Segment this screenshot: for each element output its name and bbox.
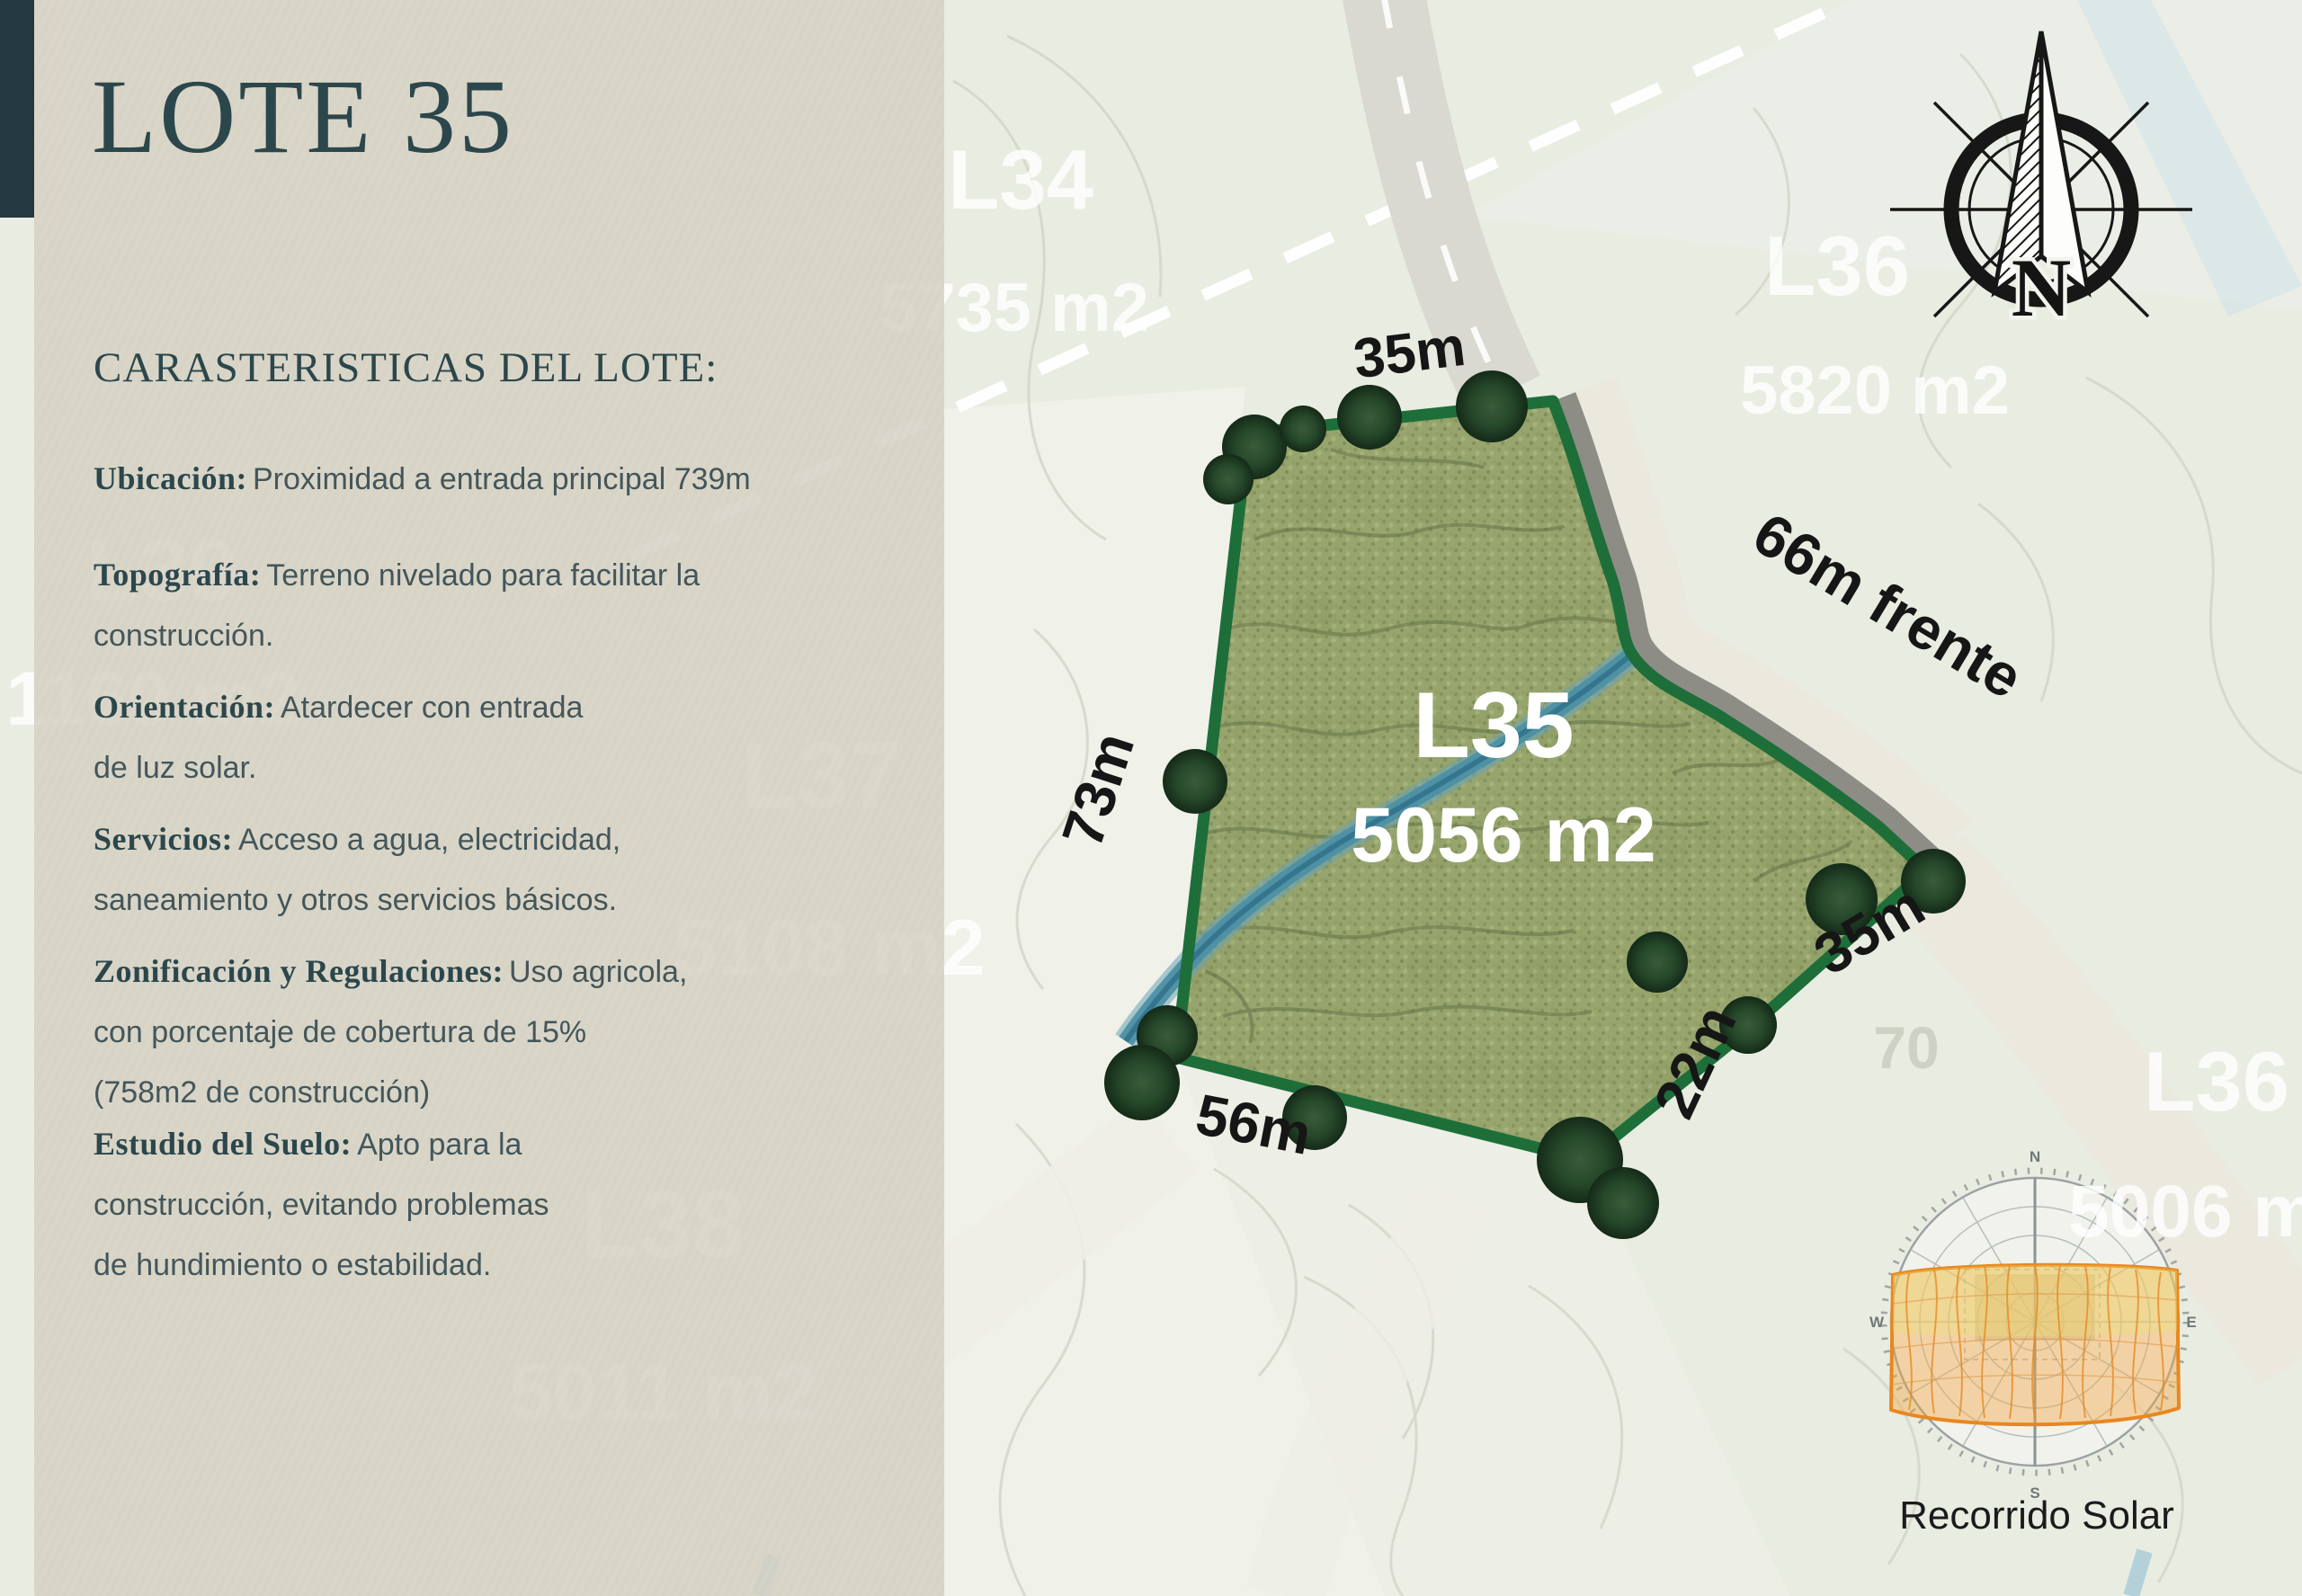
neighbor-lot-id: L36 [2144, 1034, 2289, 1128]
feature-topografia: Topografía:Terreno nivelado para facilit… [94, 546, 885, 666]
sun-cardinal-n: N [2030, 1148, 2040, 1165]
sun-cardinal-e: E [2186, 1314, 2196, 1331]
sun-chart-caption: Recorrido Solar [1899, 1493, 2174, 1538]
compass-letter: N [2012, 242, 2071, 334]
page-title: LOTE 35 [92, 56, 514, 178]
feature-label: Servicios: [94, 821, 233, 857]
feature-orientacion: Orientación:Atardecer con entrada de luz… [94, 678, 885, 798]
lot-area-label: 5056 m2 [1351, 792, 1656, 878]
elevation-label: 70 [1873, 1014, 1939, 1081]
lot-sheet-page: L34 5735 m2 L36 5820 m2 L37 5108 m2 L39 … [0, 0, 2302, 1596]
feature-estudio-suelo: Estudio del Suelo:Apto para la construcc… [94, 1115, 885, 1296]
neighbor-lot-id: L34 [948, 132, 1093, 227]
feature-text: Proximidad a entrada principal 739m [253, 462, 751, 496]
neighbor-lot-id: L36 [1764, 218, 1910, 313]
lot-id-label: L35 [1413, 673, 1574, 778]
feature-zonificacion: Zonificación y Regulaciones:Uso agricola… [94, 942, 885, 1123]
feature-label: Zonificación y Regulaciones: [94, 953, 504, 989]
feature-servicios: Servicios:Acceso a agua, electricidad, s… [94, 810, 885, 931]
feature-ubicacion: Ubicación:Proximidad a entrada principal… [94, 450, 885, 510]
feature-label: Ubicación: [94, 460, 247, 496]
sun-cardinal-w: W [1869, 1314, 1885, 1331]
neighbor-lot-area: 5006 m2 [2068, 1171, 2302, 1253]
feature-label: Topografía: [94, 557, 261, 593]
feature-label: Estudio del Suelo: [94, 1126, 352, 1162]
accent-corner-bar [0, 0, 34, 218]
section-heading: CARASTERISTICAS DEL LOTE: [94, 343, 718, 392]
neighbor-lot-area: 5820 m2 [1740, 352, 2010, 429]
feature-label: Orientación: [94, 689, 275, 725]
